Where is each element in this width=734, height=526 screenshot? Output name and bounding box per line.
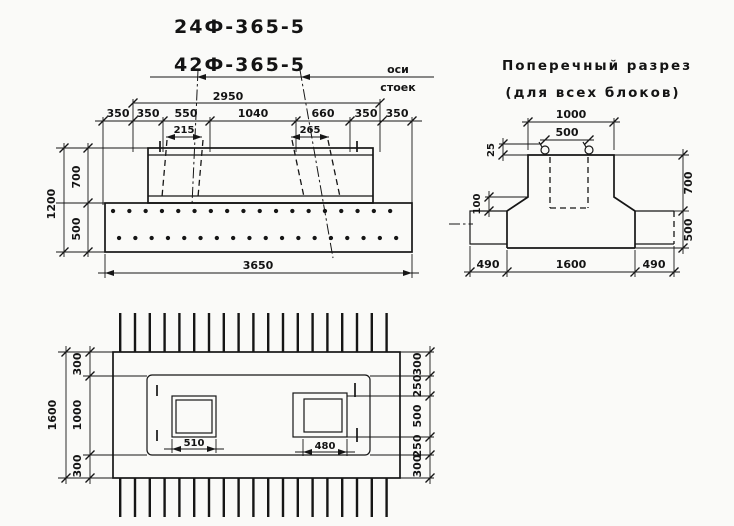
drawing-sheet: 24Ф-365-5 42Ф-365-5 оси стоек 2950 350 3…: [0, 0, 734, 526]
sect-dim-ledge: 25: [486, 143, 497, 157]
block-mark-titles: 24Ф-365-5 42Ф-365-5: [174, 16, 306, 76]
plan-dim-left-1: 1000: [71, 399, 84, 430]
sect-dim-bottom-2: 490: [643, 258, 666, 271]
elev-dim-height-upper: 700: [70, 165, 83, 188]
section-wing-left: [470, 211, 507, 244]
plan-dim-right-4: 300: [411, 454, 424, 477]
elev-dim-length-total: 3650: [243, 259, 274, 272]
plan-dim-right-2: 500: [411, 404, 424, 427]
elevation-view: оси стоек 2950 350 350 550 1040 660 350 …: [45, 63, 434, 278]
elev-dim-top-0: 350: [107, 107, 130, 120]
sect-dim-bottom-1: 1600: [556, 258, 587, 271]
section-title-line2: (для всех блоков): [505, 85, 680, 101]
plan-dim-socket-right: 480: [315, 441, 336, 452]
cross-section-view: Поперечный разрез (для всех блоков) 1000…: [449, 58, 695, 277]
elev-dim-top-4: 660: [312, 107, 335, 120]
elev-dim-top-1: 350: [137, 107, 160, 120]
sect-dim-bottom-0: 490: [477, 258, 500, 271]
plan-socket-right: [293, 393, 347, 437]
sect-dim-height-upper: 700: [682, 171, 695, 194]
section-block-outline: [507, 155, 635, 248]
plan-block-outline: [147, 375, 370, 455]
elev-dim-top-3: 1040: [238, 107, 269, 120]
block-mark-a: 24Ф-365-5: [174, 16, 306, 38]
section-socket-hidden: [550, 157, 588, 208]
plan-socket-left: [172, 396, 216, 437]
plan-dim-socket-left: 510: [184, 438, 205, 449]
sect-dim-top-width: 1000: [556, 108, 587, 121]
plan-dim-width-total: 1600: [46, 399, 59, 430]
plan-slab-outline: [113, 352, 400, 478]
technical-drawing-canvas: 24Ф-365-5 42Ф-365-5 оси стоек 2950 350 3…: [0, 0, 734, 526]
elev-dim-top-6: 350: [386, 107, 409, 120]
dim-axes-span: 2950: [213, 90, 244, 103]
elev-dim-socket-right: 265: [300, 125, 321, 136]
plan-dim-right-1: 250: [411, 374, 424, 397]
elev-dim-height-total: 1200: [45, 188, 58, 219]
plan-dim-left-0: 300: [71, 352, 84, 375]
block-mark-b: 42Ф-365-5: [174, 54, 306, 76]
plan-dim-left-2: 300: [71, 454, 84, 477]
elev-dim-top-5: 350: [355, 107, 378, 120]
elev-dim-socket-left: 215: [174, 125, 195, 136]
lifting-loop-right: [585, 146, 593, 154]
leader-axes-line2: стоек: [380, 81, 416, 94]
elev-dim-height-lower: 500: [70, 217, 83, 240]
sect-dim-haunch: 100: [472, 194, 483, 215]
leader-axes-line1: оси: [387, 63, 409, 76]
sect-dim-height-lower: 500: [682, 218, 695, 241]
plan-view: 510 480 1600 300 1000 300 300 250 500: [46, 333, 435, 498]
plan-dim-right-3: 250: [411, 434, 424, 457]
section-title-line1: Поперечный разрез: [502, 58, 692, 74]
elev-dim-top-2: 550: [175, 107, 198, 120]
lifting-loop-left: [541, 146, 549, 154]
section-wing-right: [635, 211, 674, 244]
post-axis-right: [300, 70, 333, 258]
plan-dim-right-0: 300: [411, 352, 424, 375]
sect-dim-socket-width: 500: [556, 126, 579, 139]
